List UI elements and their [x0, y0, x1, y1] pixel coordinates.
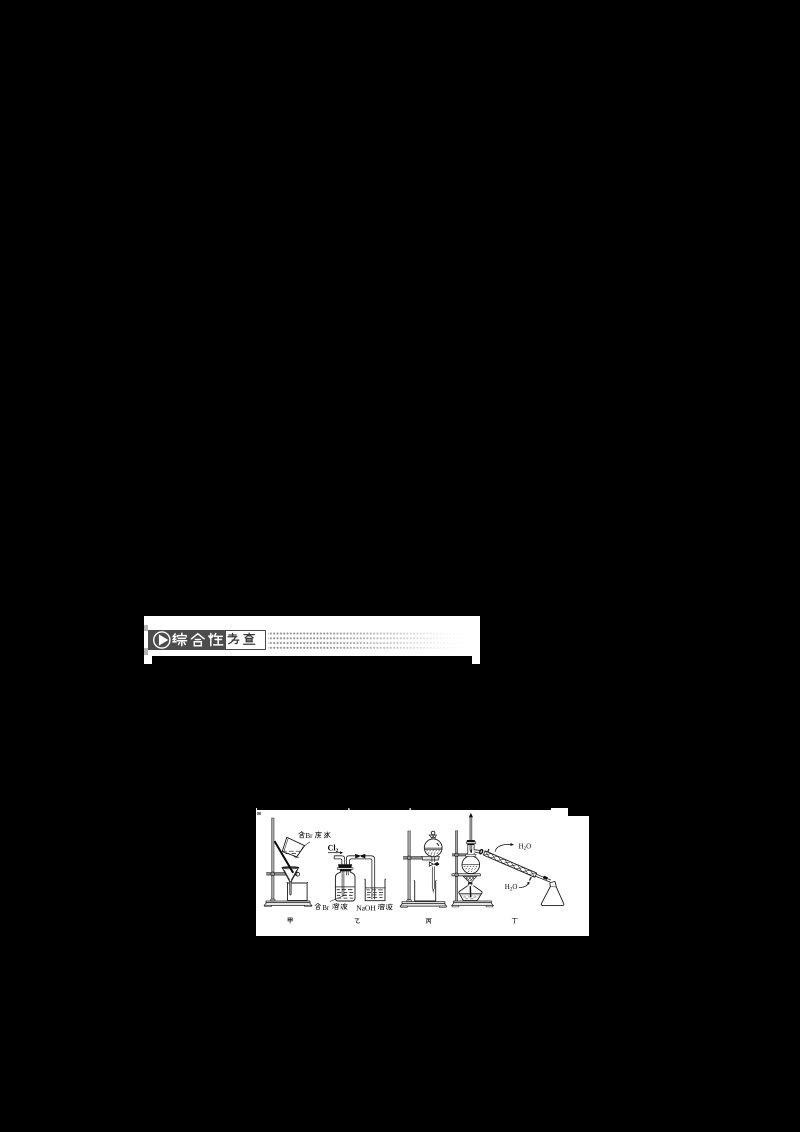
svg-text:H2O: H2O [505, 883, 518, 892]
svg-text:Br: Br [322, 904, 330, 912]
svg-text:NaOH: NaOH [356, 903, 376, 912]
svg-text:H2O: H2O [519, 843, 532, 852]
svg-text:Br: Br [305, 832, 313, 840]
